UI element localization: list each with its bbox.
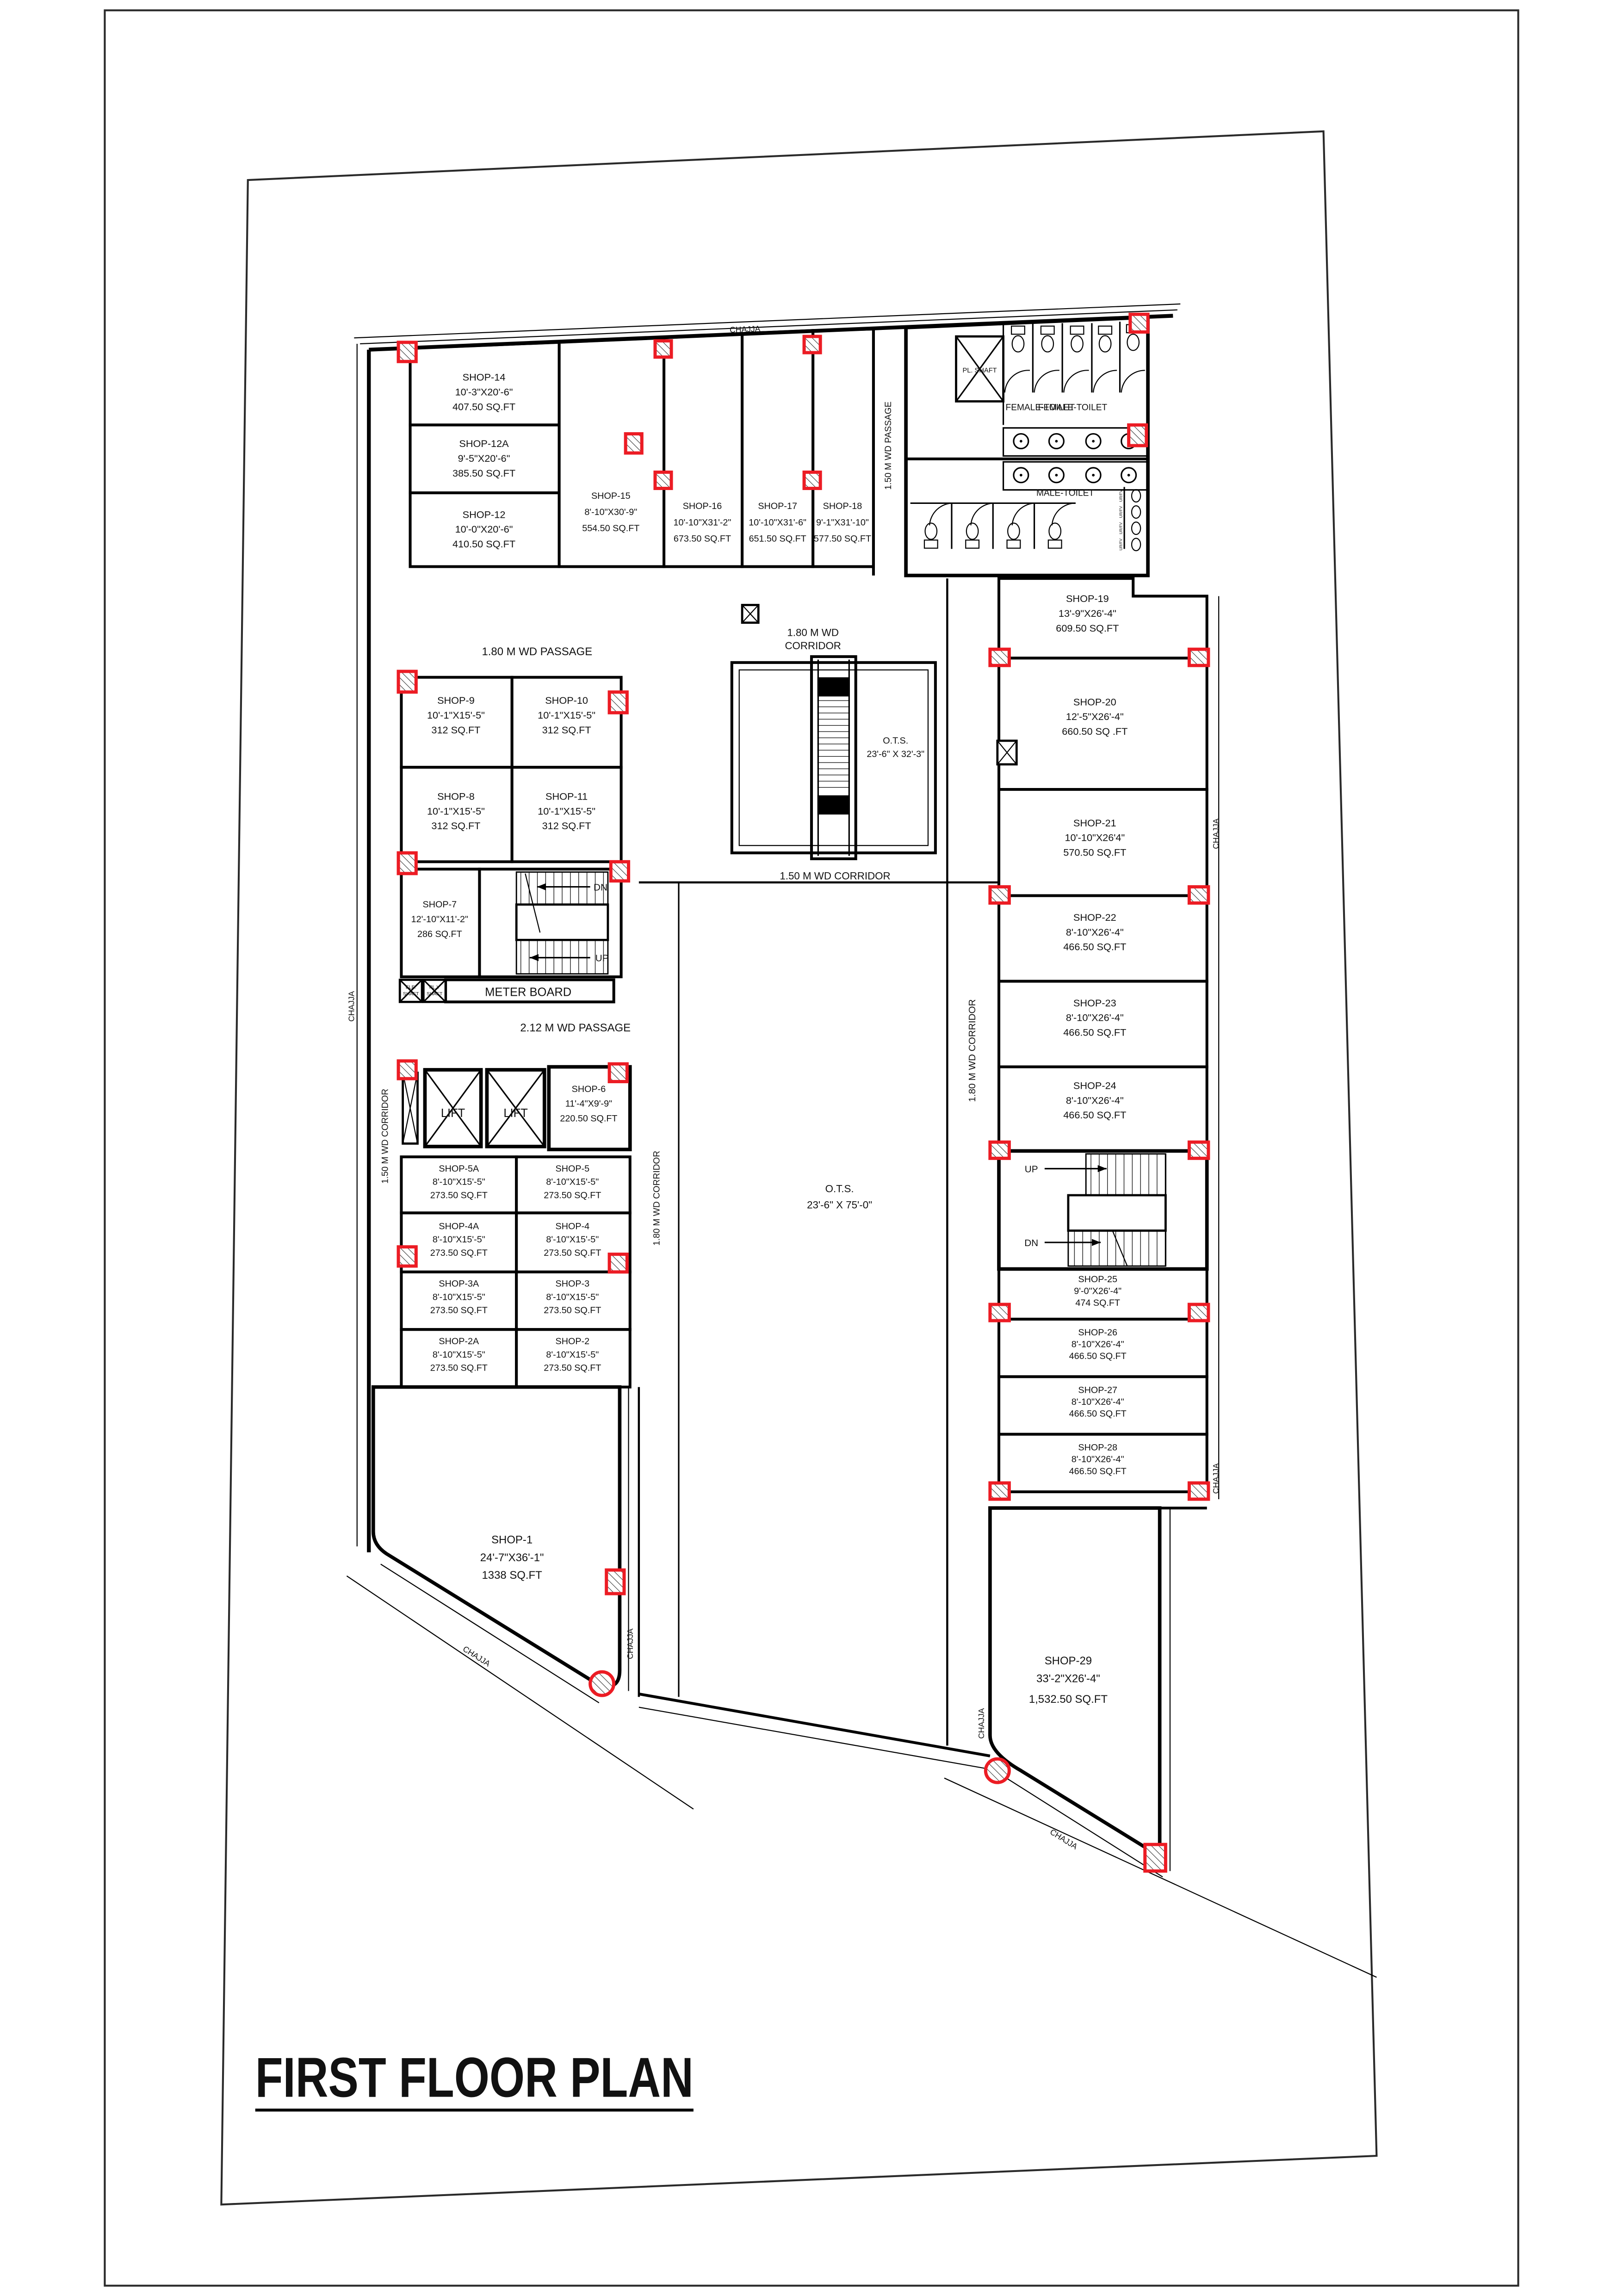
ur-fv-label: UR/FV: [1118, 539, 1123, 551]
column-icon: [398, 342, 416, 361]
column-icon: [804, 472, 820, 488]
dn-label-right: DN: [1024, 1238, 1038, 1248]
column-icon-round: [985, 1759, 1009, 1782]
chajja-label-right-upper: CHAJJA: [1211, 818, 1220, 849]
column-icon: [1189, 1483, 1208, 1499]
ur-fv-label: UR/FV: [1118, 490, 1123, 502]
column-icon: [1189, 1142, 1208, 1158]
room-shop-14: [410, 342, 559, 425]
up-label-right: UP: [1025, 1164, 1038, 1175]
chajja-label-top: CHAJJA: [730, 324, 761, 335]
column-icon: [398, 1061, 416, 1079]
floor-plan-drawing: SHOP-1410'-3"X20'-6"407.50 SQ.FT SHOP-12…: [0, 0, 1623, 2296]
column-icon: [607, 1570, 624, 1594]
corridor-150-label: 1.50 M WD CORRIDOR: [780, 870, 890, 882]
lift-1-label: LIFT: [441, 1107, 465, 1120]
column-icon: [626, 434, 642, 453]
dn-label-left: DN: [594, 882, 607, 893]
column-icon: [655, 341, 671, 357]
column-icon: [1130, 314, 1148, 332]
column-icon: [1189, 649, 1208, 665]
column-icon: [609, 692, 627, 713]
column-icon: [990, 887, 1009, 903]
room-shop-18: [813, 329, 873, 566]
column-icon: [1189, 1304, 1208, 1321]
column-icon: [611, 862, 628, 881]
shaft-box-right: [997, 741, 1016, 764]
room-shop-22: [999, 896, 1207, 981]
passage-212-label: 2.12 M WD PASSAGE: [520, 1022, 631, 1034]
column-icon: [655, 472, 671, 488]
corridor-180-left-vertical-label: 1.80 M WD CORRIDOR: [652, 1151, 662, 1246]
column-icon: [990, 1304, 1009, 1321]
passage-150-vertical-label: 1.50 M WD PASSAGE: [884, 402, 893, 490]
column-icon: [609, 1064, 627, 1081]
corridor-150-left-vertical-label: 1.50 M WD CORRIDOR: [381, 1089, 390, 1184]
corridor-180-right-vertical-label: 1.80 M WD CORRIDOR: [967, 999, 978, 1102]
room-shop-16: [664, 334, 742, 567]
column-icon: [1129, 425, 1146, 446]
room-shop-17: [742, 330, 813, 566]
chajja-label-right-lower: CHAJJA: [1211, 1463, 1220, 1494]
column-icon: [398, 853, 416, 874]
passage-180-label: 1.80 M WD PASSAGE: [482, 645, 592, 658]
chajja-label-shop1-right: CHAJJA: [626, 1628, 635, 1659]
shop-25-label: SHOP-259'-0"X26'-4"474 SQ.FT: [1074, 1274, 1121, 1308]
column-icon: [398, 1247, 416, 1266]
column-icon: [804, 336, 820, 353]
column-icon: [990, 1142, 1009, 1158]
ur-fv-label: UR/FV: [1118, 522, 1123, 534]
chajja-label-shop29-left: CHAJJA: [977, 1708, 986, 1738]
shop-11-label: SHOP-1110'-1"X15'-5"312 SQ.FT: [538, 790, 595, 832]
column-icon: [398, 671, 416, 692]
lift-2-label: LIFT: [503, 1107, 527, 1120]
room-shop-10: [512, 677, 621, 768]
ur-fv-label: UR/FV: [1118, 506, 1123, 518]
up-label-left: UP: [595, 953, 609, 964]
male-toilet-label: MALE-TOILET: [1036, 488, 1094, 498]
page-title: FIRST FLOOR PLAN: [255, 2046, 694, 2109]
chajja-label-left: CHAJJA: [347, 991, 356, 1021]
shop-12a-label: SHOP-12A9'-5"X20'-6"385.50 SQ.FT: [452, 438, 515, 479]
female-toilet-label-2: FEMALE-TOILET: [1038, 403, 1108, 413]
column-icon: [990, 649, 1009, 665]
column-icon: [1189, 887, 1208, 903]
room-shop-9: [401, 677, 512, 768]
column-icon: [990, 1483, 1009, 1499]
room-shop-20: [999, 658, 1207, 789]
shaft-box-center: [742, 605, 758, 622]
shop-10-label: SHOP-1010'-1"X15'-5"312 SQ.FT: [538, 695, 595, 736]
column-icon: [1145, 1844, 1166, 1871]
column-icon-round: [590, 1672, 614, 1695]
meter-board-label: METER BOARD: [485, 986, 571, 999]
column-icon: [609, 1254, 627, 1272]
pl-shaft-label: PL. SHAFT: [962, 367, 997, 374]
room-shop-23: [999, 981, 1207, 1067]
